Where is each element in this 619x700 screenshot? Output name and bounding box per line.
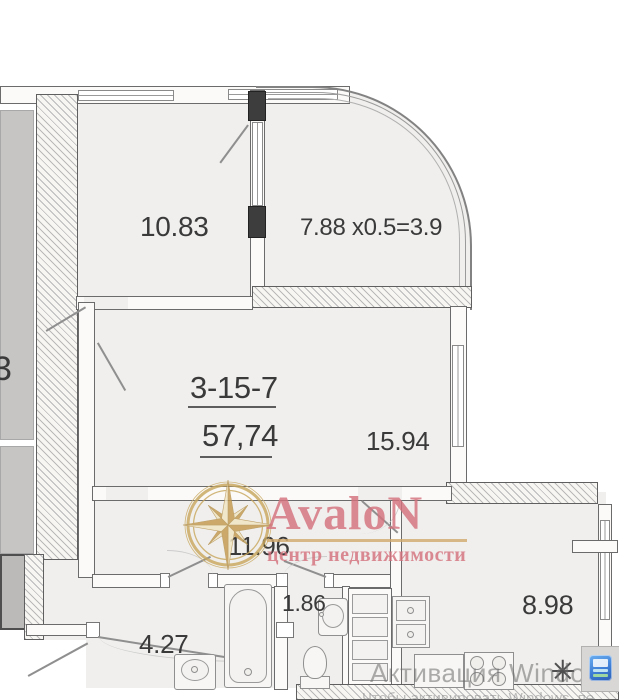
unit-number-label: 3-15-7 [190, 370, 278, 406]
balcony-arc-inner [268, 98, 460, 298]
door-opening-kitchen [358, 487, 402, 500]
wall-living-left [78, 302, 95, 578]
vent-shaft-cell [352, 594, 388, 614]
wall-bath-top-3 [326, 574, 396, 588]
total-area-underline [200, 456, 272, 458]
neighbor-slab-top [0, 110, 34, 440]
window-balcony-divider [252, 122, 263, 206]
wall-left-exterior [36, 94, 78, 560]
wall-entry-left [26, 624, 88, 636]
window-living-right [452, 345, 464, 447]
room-label-kitchen: 8.98 [522, 590, 573, 621]
windows-activation-subtitle: Чтобы активировать Windows, пе [362, 690, 594, 700]
toilet-bowl [303, 646, 327, 679]
kitchen-sink-drain-2 [407, 631, 414, 638]
room-label-hallway: 11.96 [228, 531, 290, 562]
room-label-living: 15.94 [366, 426, 430, 457]
kitchen-sink-drain-1 [407, 607, 414, 614]
wall-kitchen-topright-pier [572, 540, 618, 553]
vent-shaft-cell [352, 617, 388, 637]
wall-bath-top-1 [92, 574, 167, 588]
jamb-entry-right [276, 622, 294, 638]
blue-app-tile-icon[interactable] [589, 655, 612, 681]
vent-shaft-cell [352, 640, 388, 660]
wall-balcony-bottom [252, 286, 472, 308]
window-kitchen-right [600, 520, 610, 620]
neighbor-partial-label: 3 [0, 350, 12, 389]
total-area-label: 57,74 [202, 418, 278, 454]
unit-number-underline [188, 406, 276, 408]
wall-balcony-divider-cap-top [248, 91, 266, 121]
wall-balcony-divider-cap-bottom [248, 206, 266, 238]
door-opening-hall [106, 487, 148, 500]
room-label-wc: 1.86 [282, 590, 326, 617]
bathroom-sink-tap [191, 666, 198, 673]
door-leaf-entry-side [28, 642, 88, 676]
wall-kitchen-top [446, 482, 598, 504]
room-label-bathroom: 4.27 [139, 629, 188, 660]
system-flyout-panel [581, 646, 619, 692]
bathtub-drain [244, 668, 252, 676]
room-label-bedroom: 10.83 [140, 211, 209, 243]
neighbor-slab-bottom [0, 554, 26, 630]
room-label-balcony: 7.88 x0.5=3.9 [300, 214, 442, 242]
neighbor-slab-mid [0, 446, 34, 554]
floorplan-screenshot: 10.83 7.88 x0.5=3.9 3-15-7 57,74 15.94 1… [0, 0, 619, 700]
window-bedroom-top [78, 90, 174, 101]
